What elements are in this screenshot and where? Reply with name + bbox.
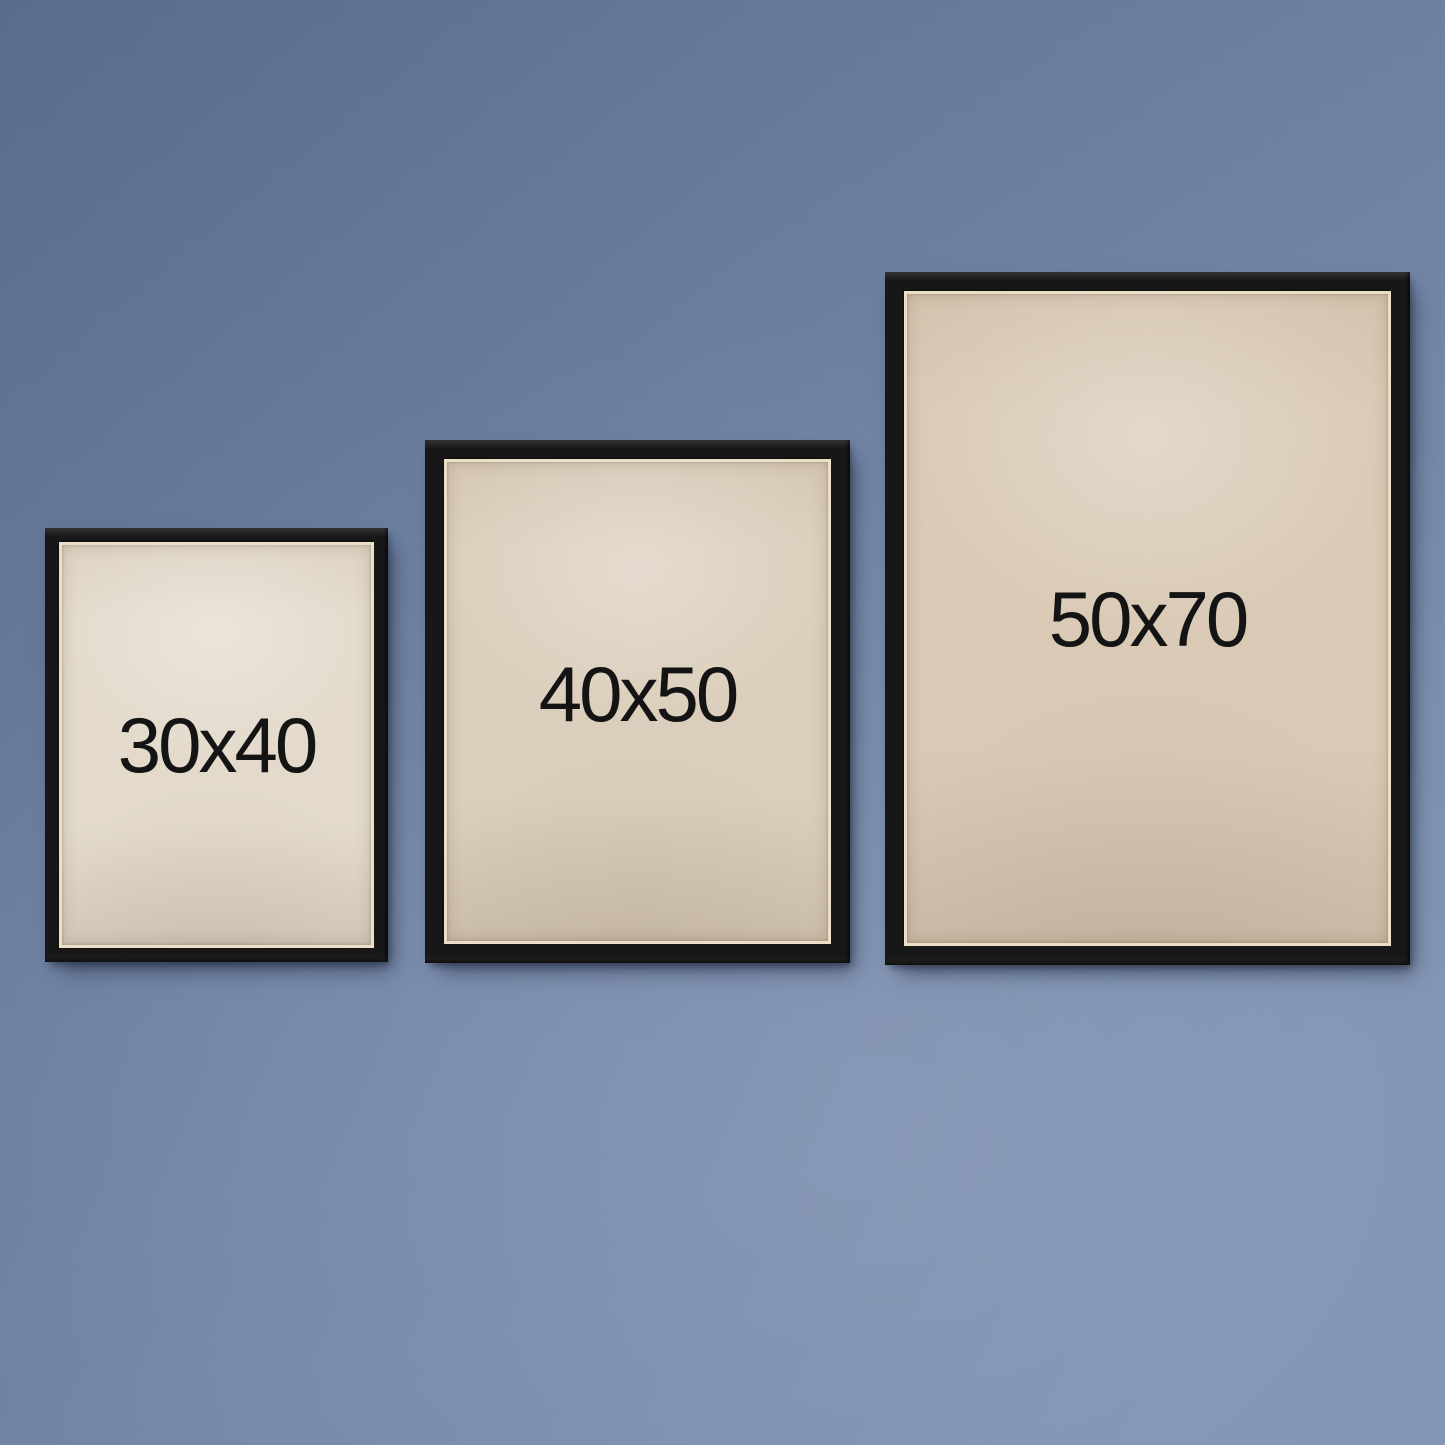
- frame-50x70: 50x70: [885, 272, 1410, 965]
- size-label-50x70: 50x70: [1049, 580, 1247, 658]
- frame-40x50: 40x50: [425, 440, 850, 963]
- frame-30x40: 30x40: [45, 528, 388, 962]
- frame-50x70-paper: 50x70: [907, 294, 1388, 943]
- size-label-40x50: 40x50: [539, 655, 737, 733]
- frame-30x40-paper: 30x40: [62, 545, 371, 945]
- frame-50x70-mat: 50x70: [904, 291, 1391, 946]
- frame-40x50-mat: 40x50: [444, 459, 831, 944]
- frame-40x50-paper: 40x50: [447, 462, 828, 941]
- frame-30x40-mat: 30x40: [59, 542, 374, 948]
- size-label-30x40: 30x40: [118, 706, 316, 784]
- wall-background: 30x40 40x50 50x70: [0, 0, 1445, 1445]
